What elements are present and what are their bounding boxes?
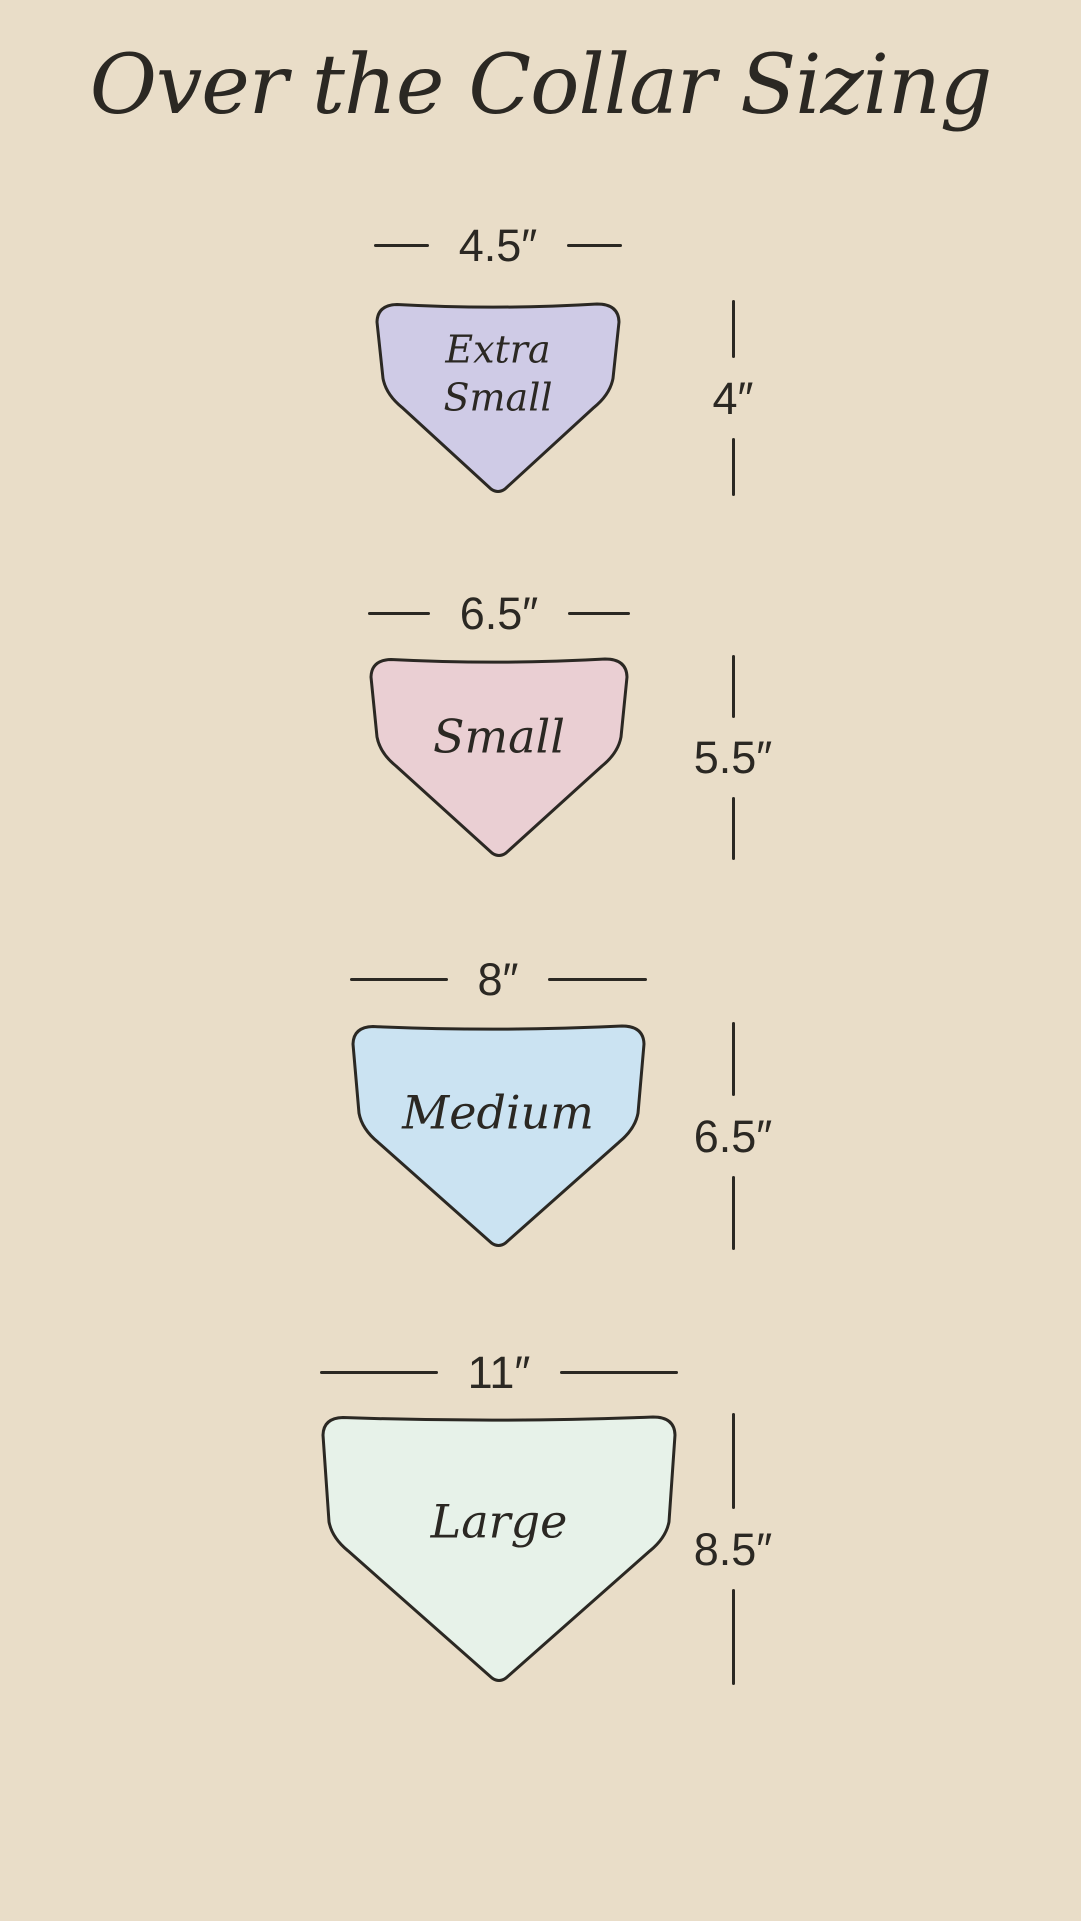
measure-tick-bottom [732, 797, 735, 860]
bandana-shape [320, 1413, 678, 1685]
measure-dash-right [548, 978, 646, 981]
measure-tick-top [732, 300, 735, 358]
measure-dash-right [568, 612, 630, 615]
measure-tick-bottom [732, 1176, 735, 1250]
height-measurement: 5.5″ [673, 655, 793, 860]
measure-dash-left [350, 978, 448, 981]
height-label: 5.5″ [694, 735, 773, 780]
height-label: 4″ [713, 376, 754, 421]
measure-dash-right [567, 244, 622, 247]
width-measurement: 11″ [320, 1345, 678, 1399]
bandana-shape [368, 655, 630, 860]
sizing-infographic: Over the Collar Sizing 4.5″ ExtraSmall 4… [0, 0, 1081, 1921]
bandana-shape [374, 300, 622, 496]
height-measurement: 8.5″ [673, 1413, 793, 1685]
page-title: Over the Collar Sizing [0, 38, 1081, 133]
width-label: 11″ [468, 1350, 531, 1395]
width-label: 4.5″ [459, 223, 538, 268]
width-label: 8″ [478, 957, 519, 1002]
measure-dash-left [374, 244, 429, 247]
width-measurement: 6.5″ [368, 586, 630, 640]
measure-tick-bottom [732, 438, 735, 496]
height-label: 6.5″ [694, 1114, 773, 1159]
width-measurement: 4.5″ [374, 218, 622, 272]
bandana-shape-wrap: Medium [350, 1022, 647, 1250]
measure-tick-bottom [732, 1589, 735, 1685]
measure-dash-right [560, 1371, 678, 1374]
bandana-outline [371, 659, 627, 856]
bandana-shape-wrap: ExtraSmall [374, 300, 622, 496]
width-label: 6.5″ [460, 591, 539, 636]
bandana-outline [323, 1417, 675, 1681]
height-label: 8.5″ [694, 1527, 773, 1572]
measure-dash-left [320, 1371, 438, 1374]
height-measurement: 6.5″ [673, 1022, 793, 1250]
bandana-shape [350, 1022, 647, 1250]
height-measurement: 4″ [673, 300, 793, 496]
bandana-outline [377, 304, 619, 492]
bandana-shape-wrap: Small [368, 655, 630, 860]
measure-tick-top [732, 655, 735, 718]
measure-tick-top [732, 1022, 735, 1096]
width-measurement: 8″ [350, 952, 647, 1006]
measure-dash-left [368, 612, 430, 615]
measure-tick-top [732, 1413, 735, 1509]
bandana-shape-wrap: Large [320, 1413, 678, 1685]
bandana-outline [353, 1026, 644, 1246]
